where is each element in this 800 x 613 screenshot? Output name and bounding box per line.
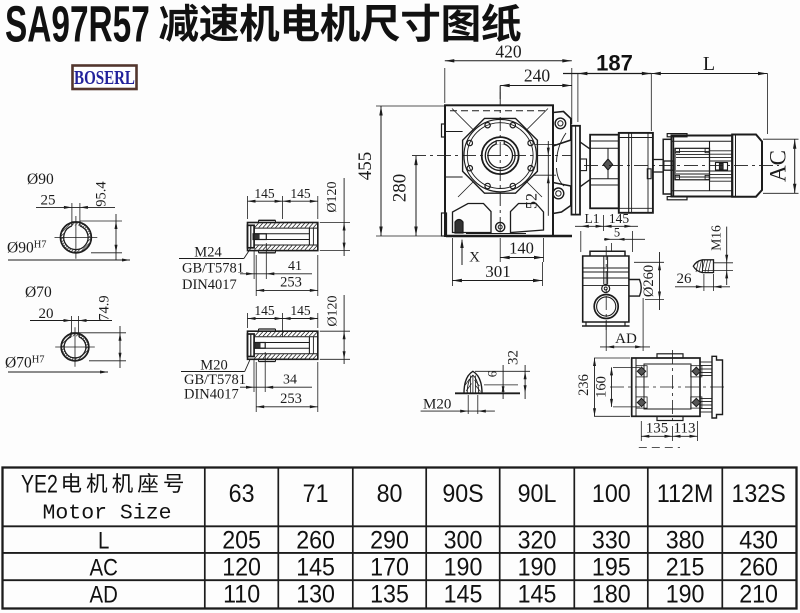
svg-text:132S: 132S xyxy=(731,480,785,508)
svg-text:135: 135 xyxy=(370,581,409,609)
svg-text:L: L xyxy=(703,53,715,75)
svg-text:430: 430 xyxy=(739,527,778,555)
svg-text:300: 300 xyxy=(444,527,483,555)
svg-text:AD: AD xyxy=(90,581,118,608)
svg-text:420: 420 xyxy=(495,42,522,62)
svg-text:X: X xyxy=(469,250,480,266)
svg-text:260: 260 xyxy=(296,527,335,555)
svg-text:80: 80 xyxy=(377,480,403,508)
svg-text:112M: 112M xyxy=(657,480,713,508)
svg-text:74.9: 74.9 xyxy=(97,295,113,320)
svg-text:Ø70: Ø70 xyxy=(25,284,52,301)
svg-text:215: 215 xyxy=(666,554,705,582)
svg-text:145: 145 xyxy=(254,186,275,201)
svg-text:253: 253 xyxy=(280,275,302,291)
svg-text:M24: M24 xyxy=(194,245,222,261)
svg-text:M20: M20 xyxy=(423,397,451,413)
svg-text:AC: AC xyxy=(766,150,791,182)
svg-text:195: 195 xyxy=(592,554,631,582)
svg-text:130: 130 xyxy=(296,581,335,609)
svg-text:5: 5 xyxy=(614,226,620,240)
svg-text:34: 34 xyxy=(283,373,297,388)
svg-text:52: 52 xyxy=(524,193,541,209)
svg-text:145: 145 xyxy=(290,303,311,318)
svg-text:145: 145 xyxy=(290,186,311,201)
svg-text:290: 290 xyxy=(370,527,409,555)
svg-text:AC: AC xyxy=(90,554,118,581)
svg-text:SA97R57: SA97R57 xyxy=(5,0,150,53)
svg-text:253: 253 xyxy=(280,391,302,407)
svg-text:210: 210 xyxy=(739,581,778,609)
svg-text:YE2: YE2 xyxy=(21,470,58,498)
svg-text:32: 32 xyxy=(506,350,522,365)
svg-text:DIN4017: DIN4017 xyxy=(182,277,237,293)
svg-text:320: 320 xyxy=(518,527,557,555)
svg-text:160: 160 xyxy=(594,376,610,398)
svg-text:DIN4017: DIN4017 xyxy=(184,387,239,403)
svg-text:63: 63 xyxy=(229,480,255,508)
svg-text:187: 187 xyxy=(596,51,633,76)
svg-text:Ø120: Ø120 xyxy=(325,181,340,212)
svg-text:190: 190 xyxy=(518,554,557,582)
svg-text:145: 145 xyxy=(254,303,275,318)
svg-text:455: 455 xyxy=(355,152,376,181)
svg-text:190: 190 xyxy=(666,581,705,609)
svg-text:280: 280 xyxy=(390,174,411,203)
svg-text:301: 301 xyxy=(485,262,511,281)
svg-text:90L: 90L xyxy=(518,480,557,508)
svg-text:90S: 90S xyxy=(442,480,483,508)
svg-text:140: 140 xyxy=(509,239,534,258)
svg-text:145: 145 xyxy=(609,211,630,226)
svg-text:113: 113 xyxy=(674,421,696,437)
svg-text:GB/T5781: GB/T5781 xyxy=(182,261,244,277)
svg-text:26: 26 xyxy=(677,271,693,287)
svg-text:170: 170 xyxy=(370,554,409,582)
svg-text:240: 240 xyxy=(524,66,551,86)
svg-text:110: 110 xyxy=(223,581,260,609)
svg-text:AD: AD xyxy=(615,331,637,347)
svg-text:100: 100 xyxy=(592,480,631,508)
svg-text:20: 20 xyxy=(39,306,54,322)
svg-text:Ø120: Ø120 xyxy=(326,295,341,326)
svg-text:180: 180 xyxy=(592,581,631,609)
svg-text:120: 120 xyxy=(222,554,261,582)
svg-text:L1: L1 xyxy=(585,211,600,226)
svg-text:145: 145 xyxy=(518,581,557,609)
svg-text:71: 71 xyxy=(303,480,329,508)
svg-text:145: 145 xyxy=(444,581,483,609)
svg-text:Ø260: Ø260 xyxy=(641,265,657,297)
svg-text:L: L xyxy=(98,527,109,554)
svg-text:330: 330 xyxy=(592,527,631,555)
svg-text:145: 145 xyxy=(296,554,335,582)
svg-text:M16: M16 xyxy=(709,225,724,251)
svg-text:95.4: 95.4 xyxy=(94,181,110,207)
svg-text:135: 135 xyxy=(646,421,669,437)
svg-text:41: 41 xyxy=(288,259,302,274)
svg-text:380: 380 xyxy=(666,527,705,555)
svg-text:25: 25 xyxy=(41,193,56,209)
svg-text:190: 190 xyxy=(444,554,483,582)
svg-text:205: 205 xyxy=(222,527,261,555)
svg-text:260: 260 xyxy=(739,554,778,582)
svg-text:236: 236 xyxy=(576,374,592,396)
svg-text:Motor Size: Motor Size xyxy=(42,502,171,526)
svg-text:BOSERL: BOSERL xyxy=(74,66,135,88)
svg-text:Ø90: Ø90 xyxy=(27,171,54,188)
